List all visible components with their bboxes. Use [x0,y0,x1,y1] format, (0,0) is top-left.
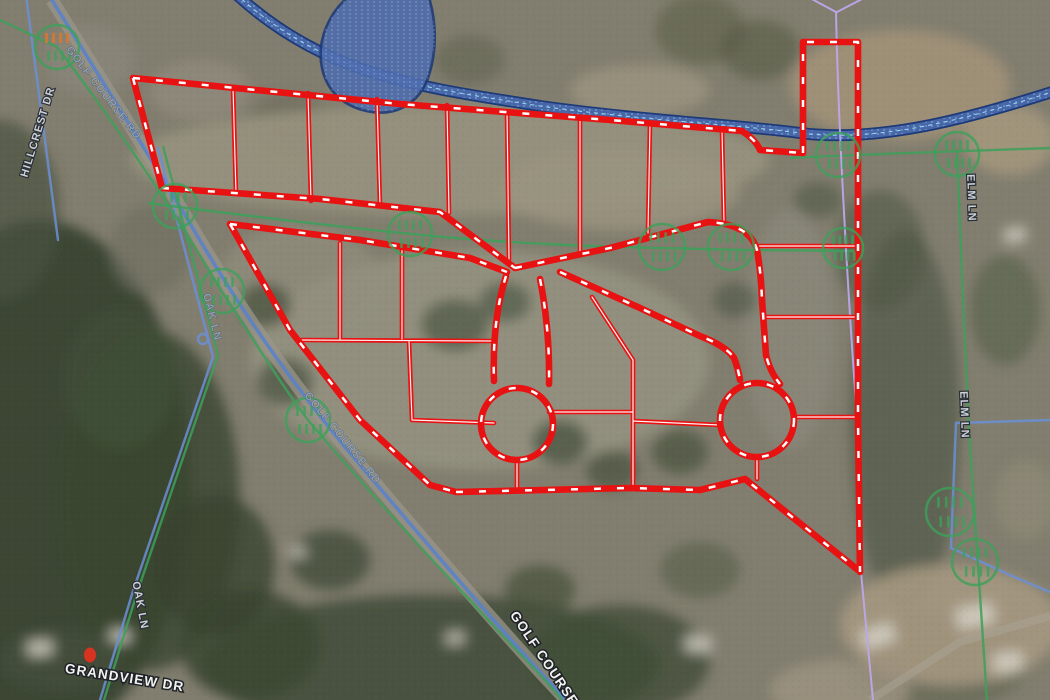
map-marker-icon[interactable] [84,648,96,663]
markers-layer [84,648,96,663]
map-canvas[interactable]: GOLF COURSE RDGOLF COURSE RDGOLF COURSE … [0,0,1050,700]
road-label-elm-ln-lower: ELM LN [957,391,971,439]
road-label-elm-ln-upper: ELM LN [964,174,978,222]
map-viewport[interactable]: GOLF COURSE RDGOLF COURSE RDGOLF COURSE … [0,0,1050,700]
